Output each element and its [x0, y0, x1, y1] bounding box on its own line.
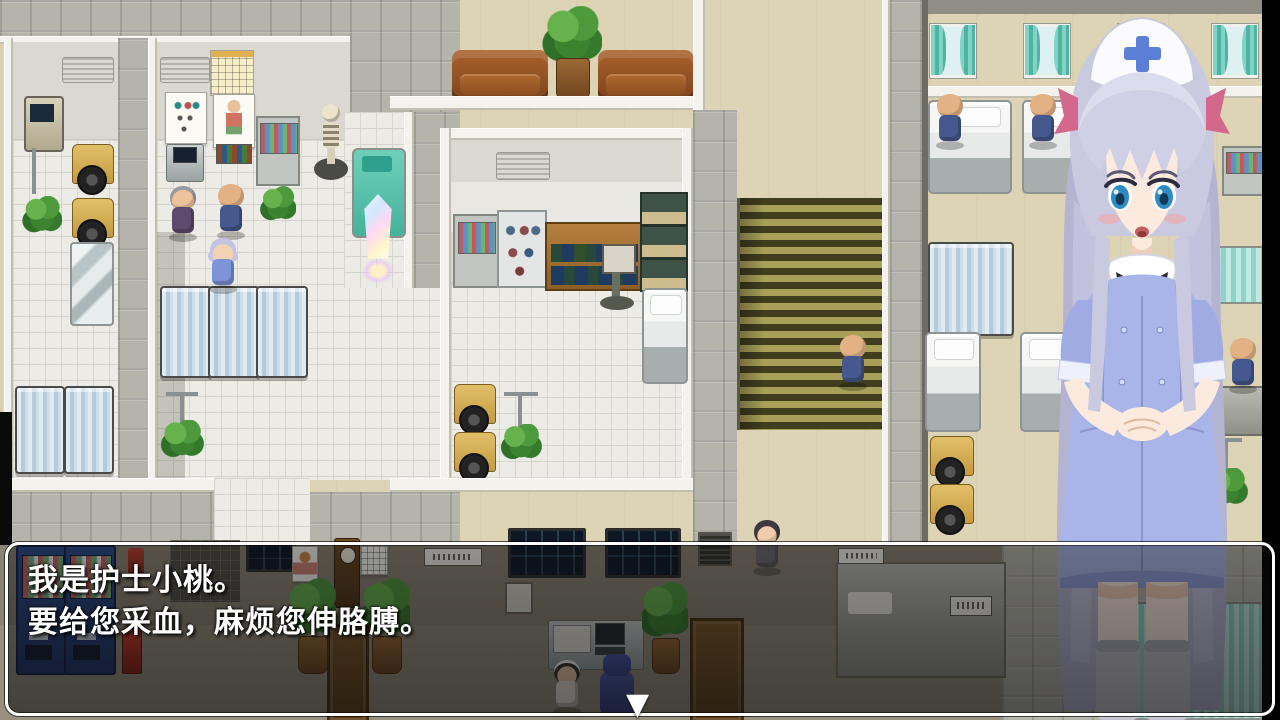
couch	[452, 50, 548, 102]
lobby-bottom-trim	[390, 96, 703, 110]
computer-desk	[166, 144, 204, 182]
npc-ward-patient	[933, 94, 967, 148]
hospital-bed	[642, 288, 688, 384]
center-room-top-trim	[440, 128, 700, 140]
privacy-screen	[928, 242, 1014, 336]
medicine-cabinet	[256, 116, 300, 186]
dish-shelf	[497, 210, 547, 288]
wall-calendar	[210, 50, 254, 96]
wheelchair	[72, 144, 114, 184]
iv-plant	[500, 424, 542, 460]
npc-bald-patient	[214, 184, 248, 238]
potted-plant	[22, 196, 62, 234]
lobby-right-trim	[693, 0, 705, 110]
skeleton-skull	[322, 104, 340, 122]
privacy-screen	[64, 386, 114, 474]
eye-chart	[165, 92, 207, 144]
book-row	[216, 144, 252, 164]
dialogue-line-2: 要给您采血，麻烦您伸胳膊。	[28, 597, 431, 641]
bottom-trim	[4, 478, 214, 492]
privacy-screen	[256, 286, 308, 378]
npc-bald-patient-stairs	[836, 335, 870, 389]
air-conditioner	[62, 57, 114, 83]
ward-left-stone	[890, 0, 924, 545]
crystal-sparkle	[362, 258, 394, 284]
skeleton-ribcage	[323, 122, 339, 148]
map-edge-void	[0, 412, 12, 545]
center-room-left-trim	[440, 128, 451, 492]
corridor-left-stone	[693, 110, 737, 545]
corridor-right-trim	[882, 0, 890, 545]
bed-pillow	[362, 156, 392, 172]
doorway-tiles	[214, 478, 310, 545]
device-screen	[30, 104, 54, 122]
stair-shadow	[737, 198, 765, 430]
wheelchair	[454, 432, 496, 472]
wheelchair	[930, 436, 974, 476]
iv-plant	[160, 420, 204, 458]
cart-pole	[612, 272, 620, 298]
privacy-screen	[15, 386, 65, 474]
wheelchair	[72, 198, 114, 238]
iv-stand-arm	[504, 392, 538, 396]
top-wall-stone	[0, 0, 352, 38]
iv-stand	[32, 148, 36, 194]
bottom-trim	[390, 478, 703, 492]
npc-elderly-woman	[166, 186, 200, 240]
skeleton-legs	[327, 148, 335, 164]
privacy-screen	[160, 286, 212, 378]
cart-base	[600, 296, 634, 310]
game-viewport: 我是护士小桃。 要给您采血，麻烦您伸胳膊。 ▼	[0, 0, 1280, 720]
air-conditioner	[160, 57, 210, 83]
wheelchair	[930, 484, 974, 524]
medical-monitor-device	[24, 96, 64, 152]
mirror-panel	[70, 242, 114, 326]
lobby-plant-foliage	[542, 6, 602, 64]
couch	[598, 50, 694, 102]
air-conditioner	[496, 152, 550, 180]
continue-indicator-icon[interactable]: ▼	[626, 690, 649, 720]
lobby-plant-pot	[556, 58, 590, 100]
privacy-screen	[208, 286, 260, 378]
wheelchair	[454, 384, 496, 424]
hospital-bed	[925, 332, 981, 432]
monitor-cart	[598, 244, 636, 310]
anatomy-poster	[213, 94, 255, 148]
supply-rack	[640, 192, 688, 292]
skeleton-model	[318, 104, 344, 166]
ward-window	[930, 24, 976, 78]
npc-player-nurse-sprite	[206, 238, 240, 292]
iv-stand-arm	[166, 392, 198, 396]
potted-plant	[260, 186, 296, 222]
room2-left-trim	[148, 38, 157, 490]
cart-device	[602, 244, 636, 274]
dialogue-line-1: 我是护士小桃。	[28, 555, 245, 599]
glass-cabinet	[453, 214, 499, 288]
laptop-screen	[173, 147, 197, 163]
